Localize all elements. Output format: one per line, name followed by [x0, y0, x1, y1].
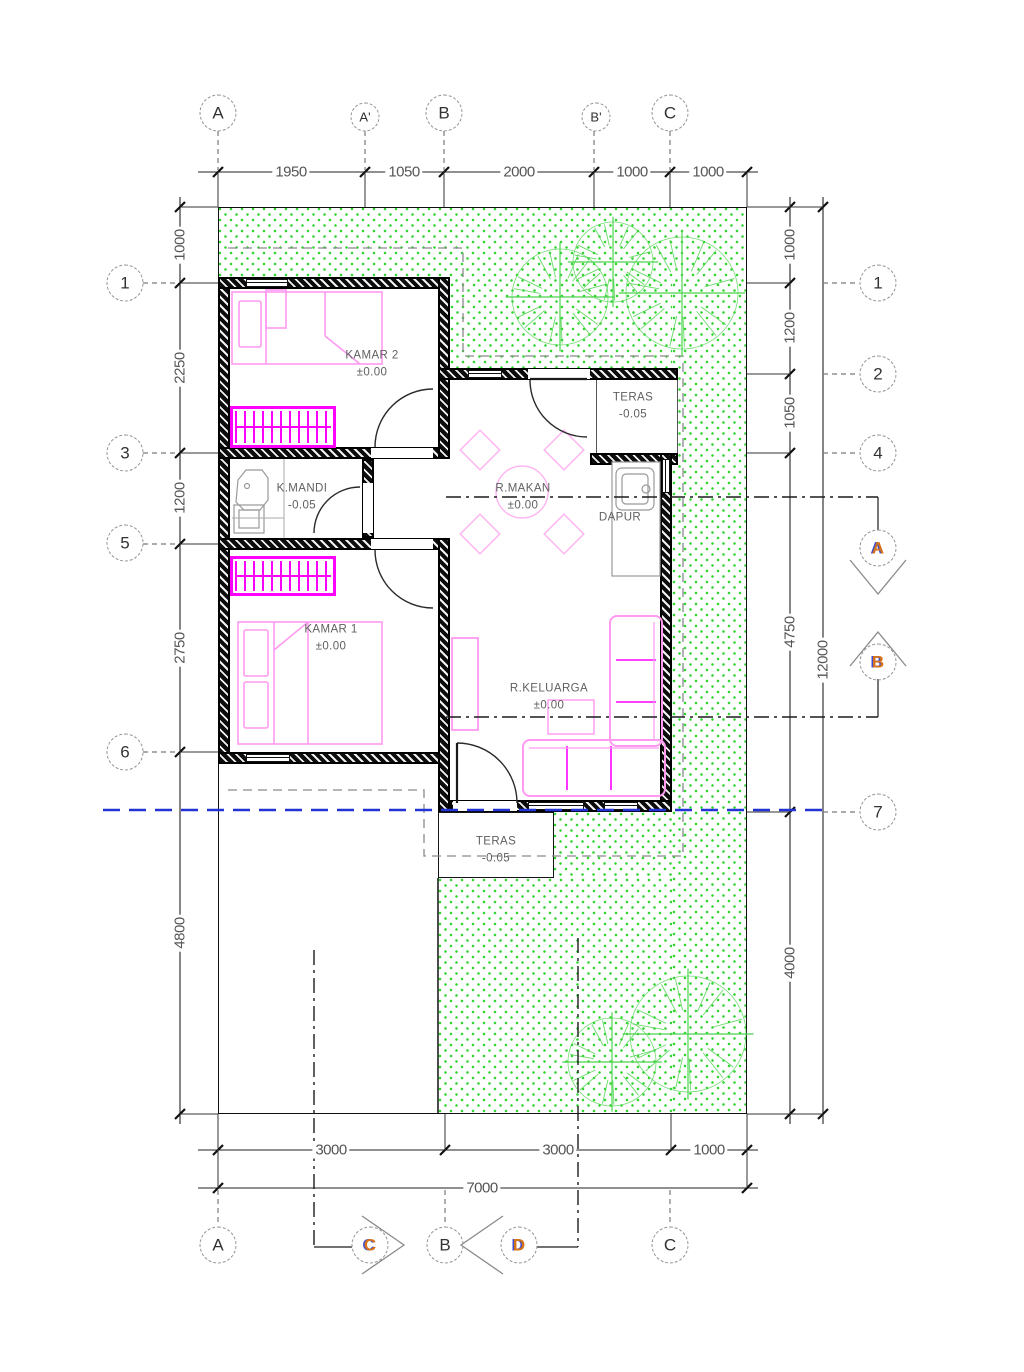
bubble-label: 1	[873, 273, 882, 293]
room-label-teras-bottom: TERAS-0.05	[476, 833, 516, 866]
grid-bubble-row-1-left: 1	[107, 265, 144, 302]
grid-bubble-col-b-prime: B'	[582, 103, 611, 132]
dim-label-total: 12000	[815, 637, 832, 682]
dim-label: 1000	[613, 164, 650, 181]
room-label-dapur: DAPUR	[599, 510, 641, 527]
room-label-kamar1: KAMAR 1±0.00	[304, 621, 357, 654]
bubble-label: C	[664, 1235, 676, 1255]
dim-label: 2000	[500, 164, 537, 181]
grid-bubble-col-b-bottom: B	[427, 1227, 464, 1264]
room-level: -0.05	[613, 406, 653, 423]
wardrobe-kamar2	[230, 406, 336, 448]
section-marker-a: A	[860, 530, 897, 567]
bubble-label: 4	[873, 443, 882, 463]
section-letter: A	[872, 538, 884, 558]
room-name: KAMAR 2	[345, 347, 398, 364]
bubble-label: B	[438, 103, 449, 123]
door-opening	[363, 483, 373, 533]
bubble-label: 6	[120, 742, 129, 762]
room-level: -0.05	[277, 497, 328, 514]
room-name: TERAS	[476, 833, 516, 850]
section-marker-b: B	[860, 644, 897, 681]
grid-bubble-row-5-left: 5	[107, 525, 144, 562]
dim-label: 1000	[782, 226, 799, 263]
bubble-label: 1	[120, 273, 129, 293]
grid-bubble-row-6-left: 6	[107, 734, 144, 771]
wall-segment	[218, 277, 230, 764]
room-label-rkeluarga: R.KELUARGA±0.00	[510, 680, 588, 713]
dim-label: 1200	[172, 479, 189, 516]
door-opening	[371, 539, 433, 549]
room-label-teras-top: TERAS-0.05	[613, 389, 653, 422]
window	[246, 279, 288, 287]
grid-bubble-col-c: C	[652, 95, 689, 132]
dim-label: 1050	[782, 394, 799, 431]
grid-bubble-col-a-bottom: A	[200, 1227, 237, 1264]
dim-label: 4000	[782, 944, 799, 981]
bubble-label: A'	[359, 110, 370, 125]
dim-label: 2250	[172, 349, 189, 386]
grid-bubble-row-1-right: 1	[860, 265, 897, 302]
room-level: ±0.00	[495, 497, 550, 514]
room-label-kamar2: KAMAR 2±0.00	[345, 347, 398, 380]
grid-bubble-row-2-right: 2	[860, 356, 897, 393]
room-level: ±0.00	[304, 638, 357, 655]
window	[246, 754, 290, 762]
floor-plan-canvas: KAMAR 2±0.00 TERAS-0.05 R.MAKAN±0.00 DAP…	[0, 0, 1024, 1372]
bubble-label: A	[212, 103, 223, 123]
dim-label: 1950	[272, 164, 309, 181]
room-name: R.KELUARGA	[510, 680, 588, 697]
room-name: K.MANDI	[277, 480, 328, 497]
room-name: KAMAR 1	[304, 621, 357, 638]
bubble-label: 2	[873, 364, 882, 384]
wall-segment	[660, 453, 672, 812]
room-level: ±0.00	[345, 364, 398, 381]
room-level: -0.05	[476, 850, 516, 867]
door-opening	[528, 369, 590, 379]
grid-bubble-col-a-prime: A'	[351, 103, 380, 132]
room-name: DAPUR	[599, 510, 641, 527]
grid-bubble-row-3-left: 3	[107, 435, 144, 472]
dim-label-total: 7000	[463, 1180, 500, 1197]
dim-label: 1200	[782, 309, 799, 346]
dim-label: 4800	[172, 914, 189, 951]
dim-label: 3000	[539, 1142, 576, 1159]
section-marker-d: D	[501, 1227, 538, 1264]
window	[528, 802, 584, 810]
wardrobe-hatch	[235, 561, 331, 591]
bubble-label: B	[439, 1235, 450, 1255]
dim-label: 1000	[690, 1142, 727, 1159]
section-letter: C	[364, 1235, 376, 1255]
bubble-label: 7	[873, 802, 882, 822]
dim-label: 1050	[385, 164, 422, 181]
room-level: ±0.00	[510, 697, 588, 714]
grid-bubble-col-b: B	[426, 95, 463, 132]
dim-label: 3000	[312, 1142, 349, 1159]
grid-bubble-row-7-right: 7	[860, 794, 897, 831]
dim-label: 1000	[689, 164, 726, 181]
window	[604, 802, 638, 810]
grid-bubble-col-a: A	[200, 95, 237, 132]
bubble-label: A	[212, 1235, 223, 1255]
bubble-label: C	[664, 103, 676, 123]
room-label-rmakan: R.MAKAN±0.00	[495, 480, 550, 513]
wardrobe-hatch	[235, 411, 331, 443]
grid-bubble-col-c-bottom: C	[652, 1227, 689, 1264]
dim-label: 4750	[782, 613, 799, 650]
dim-label: 1000	[172, 226, 189, 263]
window	[662, 459, 670, 493]
bubble-label: B'	[590, 110, 601, 125]
section-marker-c: C	[352, 1227, 389, 1264]
wardrobe-kamar1	[230, 556, 336, 596]
room-name: TERAS	[613, 389, 653, 406]
window	[468, 370, 502, 378]
section-letter: D	[513, 1235, 525, 1255]
room-name: R.MAKAN	[495, 480, 550, 497]
grid-bubble-row-4-right: 4	[860, 435, 897, 472]
door-opening	[453, 801, 517, 811]
dim-label: 2750	[172, 629, 189, 666]
bubble-label: 3	[120, 443, 129, 463]
room-label-kmandi: K.MANDI-0.05	[277, 480, 328, 513]
bubble-label: 5	[120, 533, 129, 553]
wall-segment	[438, 538, 450, 812]
door-opening	[371, 448, 433, 458]
section-letter: B	[872, 652, 884, 672]
